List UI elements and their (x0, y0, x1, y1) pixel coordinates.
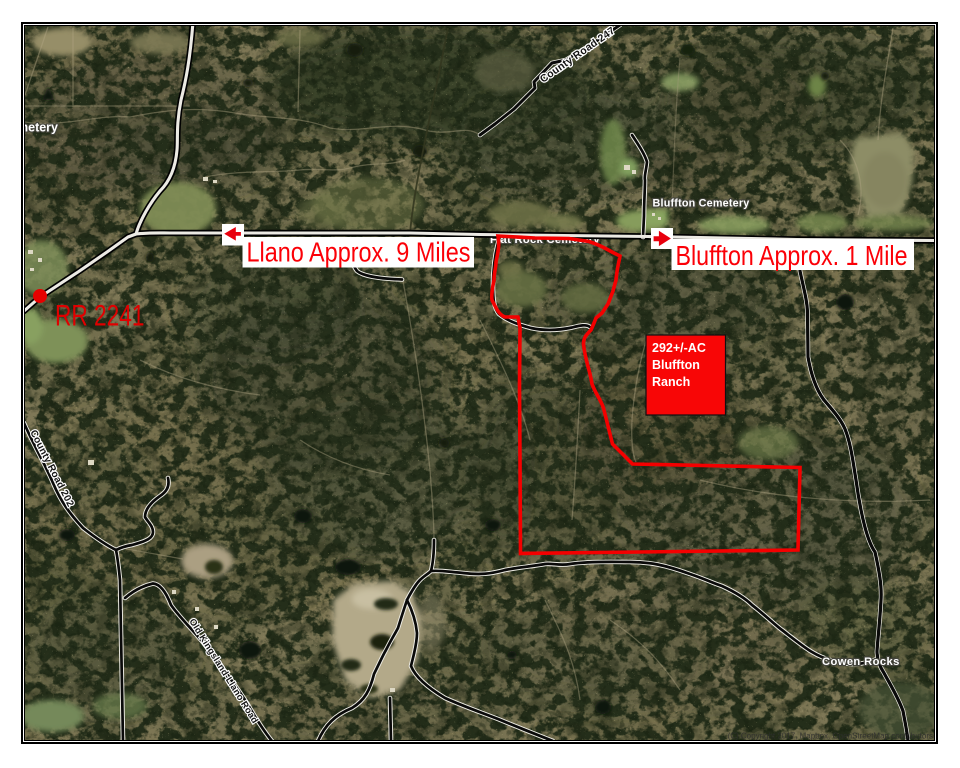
svg-text:Bluffton Approx. 1 Mile: Bluffton Approx. 1 Mile (676, 240, 908, 271)
svg-text:292+/-AC: 292+/-AC (652, 341, 706, 355)
svg-text:metery: metery (25, 121, 58, 135)
svg-text:Llano Approx. 9 Miles: Llano Approx. 9 Miles (247, 236, 471, 267)
svg-text:(C) Copyright 2017, Mapbox, Op: (C) Copyright 2017, Mapbox, OpenStreetMa… (728, 732, 933, 741)
svg-text:RR 2241: RR 2241 (55, 300, 145, 333)
svg-text:Bluffton: Bluffton (652, 358, 700, 372)
svg-text:Ranch: Ranch (652, 375, 690, 389)
svg-text:Bluffton Cemetery: Bluffton Cemetery (653, 197, 750, 209)
svg-text:Cowen Rocks: Cowen Rocks (822, 656, 900, 668)
